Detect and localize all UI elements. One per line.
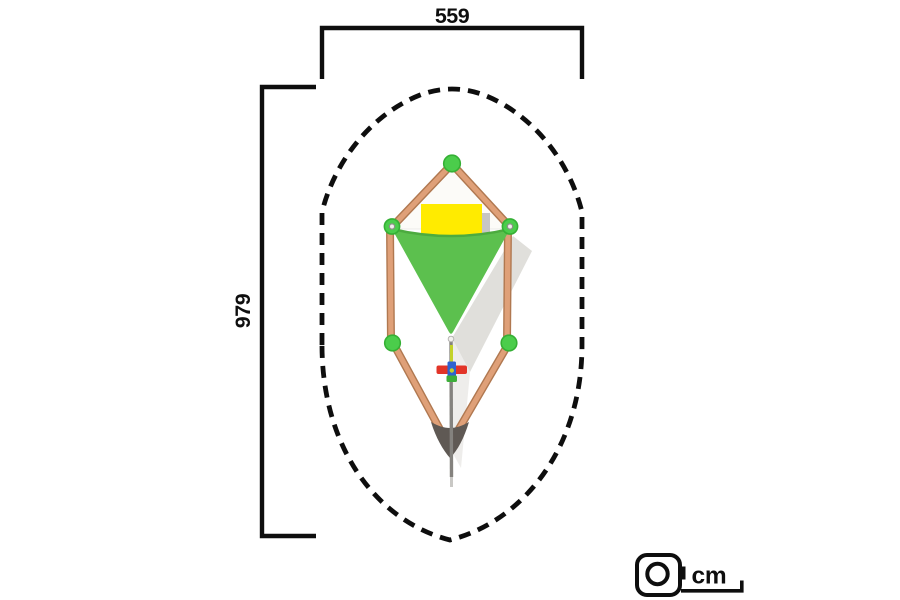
- width-dimension-label: 559: [435, 4, 470, 28]
- yellow-panel: [421, 204, 482, 236]
- bolt-icon: [507, 224, 512, 229]
- height-dimension-bracket: [262, 87, 316, 536]
- wood-beam-side-right-core: [507, 227, 508, 343]
- height-dimension-label: 979: [231, 293, 255, 328]
- figure-arm-right: [455, 366, 468, 375]
- site-plan-canvas: 559 979: [0, 0, 900, 600]
- tape-measure-tab: [680, 567, 686, 580]
- bolt-icon: [389, 224, 394, 229]
- post-cap-mid-left: [385, 335, 401, 351]
- width-dimension: 559: [322, 4, 582, 79]
- scale-indicator: cm: [637, 555, 742, 595]
- unit-label: cm: [692, 563, 727, 590]
- figure-center-dot: [450, 368, 454, 372]
- site-plan-drawing: 559 979: [0, 0, 900, 600]
- figure-legs: [447, 376, 458, 383]
- play-structure: [384, 155, 532, 487]
- height-dimension: 979: [231, 87, 316, 536]
- post-cap-top: [444, 155, 461, 172]
- figure-arm-left: [437, 366, 450, 375]
- wood-beam-side-left-core: [390, 227, 391, 343]
- post-cap-mid-right: [501, 335, 517, 351]
- tape-measure-body: [637, 555, 680, 595]
- pole-link-ring: [448, 336, 454, 342]
- width-dimension-bracket: [322, 28, 582, 79]
